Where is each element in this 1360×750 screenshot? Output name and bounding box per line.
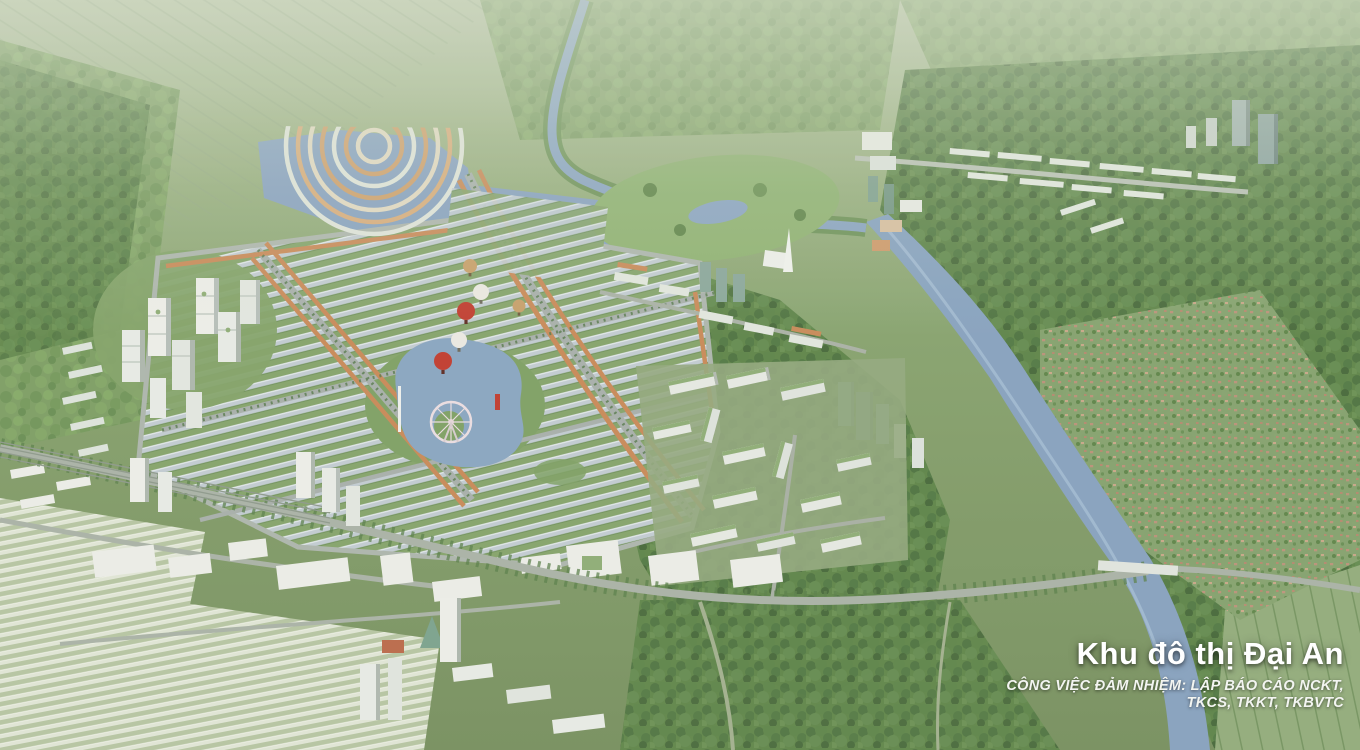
- project-caption: Khu đô thị Đại An CÔNG VIỆC ĐẢM NHIỆM: L…: [1006, 636, 1344, 712]
- project-title: Khu đô thị Đại An: [1006, 636, 1344, 672]
- project-subtitle-line2: TKCS, TKKT, TKBVTC: [1006, 695, 1344, 712]
- aerial-masterplan-image: Khu đô thị Đại An CÔNG VIỆC ĐẢM NHIỆM: L…: [0, 0, 1360, 750]
- project-subtitle: CÔNG VIỆC ĐẢM NHIỆM: LẬP BÁO CÁO NCKT, T…: [1006, 678, 1344, 712]
- project-subtitle-line1: CÔNG VIỆC ĐẢM NHIỆM: LẬP BÁO CÁO NCKT,: [1006, 678, 1344, 695]
